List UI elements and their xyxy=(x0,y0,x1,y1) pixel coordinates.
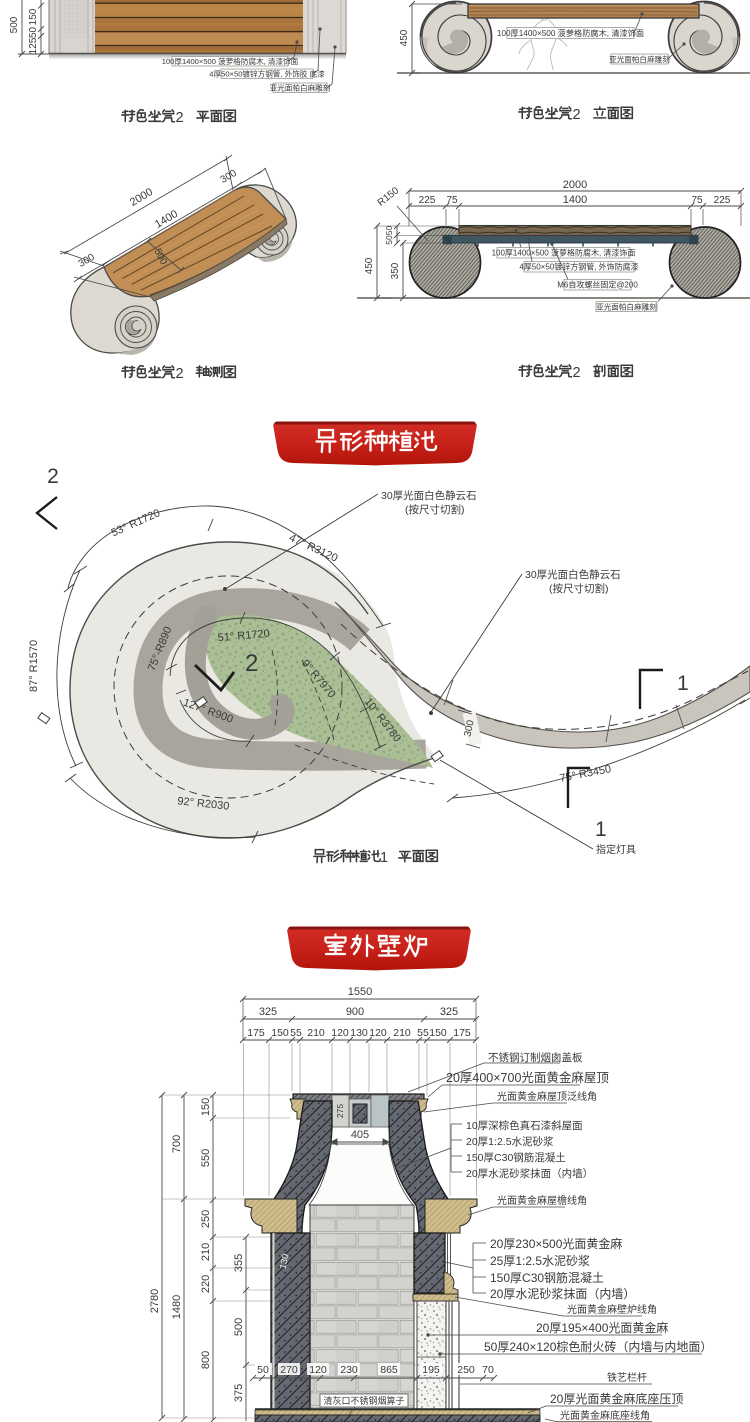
svg-text:225: 225 xyxy=(419,195,436,206)
svg-text:2780: 2780 xyxy=(149,1289,161,1313)
svg-text:光面黄金麻底座线角: 光面黄金麻底座线角 xyxy=(560,1409,650,1422)
svg-text:450: 450 xyxy=(364,257,375,274)
svg-text:375: 375 xyxy=(233,1384,245,1402)
svg-text:120: 120 xyxy=(369,1027,387,1039)
svg-text:20厚光面黄金麻底座压顶: 20厚光面黄金麻底座压顶 xyxy=(550,1391,683,1406)
svg-text:4厚50×50镀锌方钢管, 外饰胶 底漆: 4厚50×50镀锌方钢管, 外饰胶 底漆 xyxy=(209,69,325,79)
svg-text:550: 550 xyxy=(200,1149,212,1167)
svg-text:100厚1400×500 菠萝格防腐木, 清漆饰面: 100厚1400×500 菠萝格防腐木, 清漆饰面 xyxy=(497,28,644,38)
svg-text:光面黄金麻壁炉线角: 光面黄金麻壁炉线角 xyxy=(567,1303,657,1316)
svg-text:1: 1 xyxy=(595,818,607,841)
svg-text:250: 250 xyxy=(200,1210,212,1228)
svg-text:指定灯具: 指定灯具 xyxy=(596,843,636,856)
svg-text:55: 55 xyxy=(290,1027,302,1039)
svg-text:125: 125 xyxy=(28,37,39,54)
svg-text:195: 195 xyxy=(422,1364,440,1376)
svg-text:210: 210 xyxy=(307,1027,325,1039)
svg-text:1550: 1550 xyxy=(348,986,372,998)
svg-text:20厚400×700光面黄金麻屋顶: 20厚400×700光面黄金麻屋顶 xyxy=(446,1070,609,1085)
svg-text:210: 210 xyxy=(200,1243,212,1261)
svg-text:210: 210 xyxy=(393,1027,411,1039)
svg-text:220: 220 xyxy=(200,1275,212,1293)
svg-text:100厚1400×500 菠萝格防腐木, 清漆饰面: 100厚1400×500 菠萝格防腐木, 清漆饰面 xyxy=(162,56,299,66)
svg-text:铁艺栏杆: 铁艺栏杆 xyxy=(607,1371,647,1384)
svg-text:355: 355 xyxy=(233,1254,245,1272)
svg-text:(按尺寸切割): (按尺寸切割) xyxy=(405,503,465,516)
svg-text:不锈钢订制烟囱盖板: 不锈钢订制烟囱盖板 xyxy=(488,1051,583,1064)
svg-text:2: 2 xyxy=(573,107,581,123)
svg-text:10厚深棕色真石漆斜屋面: 10厚深棕色真石漆斜屋面 xyxy=(466,1119,583,1132)
svg-text:275: 275 xyxy=(335,1104,345,1118)
svg-text:2: 2 xyxy=(176,366,184,382)
svg-text:70: 70 xyxy=(482,1364,494,1376)
svg-text:325: 325 xyxy=(440,1006,458,1018)
svg-text:30厚光面白色静云石: 30厚光面白色静云石 xyxy=(381,489,477,502)
svg-text:800: 800 xyxy=(200,1351,212,1369)
svg-text:175: 175 xyxy=(453,1027,471,1039)
svg-text:75: 75 xyxy=(446,195,458,206)
svg-text:150: 150 xyxy=(200,1098,212,1116)
svg-text:55: 55 xyxy=(417,1027,429,1039)
svg-text:亚光面帕白麻雕刻: 亚光面帕白麻雕刻 xyxy=(609,54,670,64)
svg-text:150: 150 xyxy=(271,1027,289,1039)
svg-text:250: 250 xyxy=(457,1364,475,1376)
svg-text:光面黄金麻屋顶泛线角: 光面黄金麻屋顶泛线角 xyxy=(497,1090,597,1103)
svg-text:2: 2 xyxy=(245,650,258,677)
svg-text:350: 350 xyxy=(390,262,401,279)
svg-text:20厚1:2.5水泥砂浆: 20厚1:2.5水泥砂浆 xyxy=(466,1135,554,1148)
svg-text:150: 150 xyxy=(429,1027,447,1039)
svg-text:120: 120 xyxy=(309,1364,327,1376)
svg-text:M6自攻螺丝固定@200: M6自攻螺丝固定@200 xyxy=(557,280,638,290)
svg-text:4厚50×50镀锌方钢管, 外饰防腐漆: 4厚50×50镀锌方钢管, 外饰防腐漆 xyxy=(519,262,638,272)
svg-text:100厚1400×500 菠萝格防腐木, 清漆饰面: 100厚1400×500 菠萝格防腐木, 清漆饰面 xyxy=(492,248,636,258)
svg-text:2000: 2000 xyxy=(563,179,587,191)
svg-text:225: 225 xyxy=(714,195,731,206)
svg-text:87° R1570: 87° R1570 xyxy=(28,640,40,692)
svg-text:20厚230×500光面黄金麻: 20厚230×500光面黄金麻 xyxy=(490,1236,622,1251)
svg-text:亚光面帕白麻雕刻: 亚光面帕白麻雕刻 xyxy=(596,302,657,312)
svg-text:50厚240×120棕色耐火砖（内墙与内地面）: 50厚240×120棕色耐火砖（内墙与内地面） xyxy=(484,1339,712,1354)
svg-text:270: 270 xyxy=(280,1364,298,1376)
svg-text:(按尺寸切割): (按尺寸切割) xyxy=(549,582,609,595)
svg-text:120: 120 xyxy=(331,1027,349,1039)
svg-text:405: 405 xyxy=(351,1129,369,1141)
svg-text:865: 865 xyxy=(380,1364,398,1376)
svg-text:20厚水泥砂浆抹面（内墙）: 20厚水泥砂浆抹面（内墙） xyxy=(490,1286,635,1301)
svg-text:清灰口不锈钢烟箅子: 清灰口不锈钢烟箅子 xyxy=(323,1395,404,1406)
svg-text:325: 325 xyxy=(259,1006,277,1018)
svg-text:2: 2 xyxy=(573,365,581,381)
svg-text:1400: 1400 xyxy=(563,194,587,206)
svg-text:900: 900 xyxy=(346,1006,364,1018)
svg-text:150厚C30钢筋混凝土: 150厚C30钢筋混凝土 xyxy=(466,1151,566,1164)
svg-text:1: 1 xyxy=(380,850,388,866)
svg-text:1480: 1480 xyxy=(171,1295,183,1319)
svg-text:20厚水泥砂浆抹面（内墙）: 20厚水泥砂浆抹面（内墙） xyxy=(466,1167,593,1180)
svg-text:光面黄金麻屋檐线角: 光面黄金麻屋檐线角 xyxy=(497,1194,587,1207)
svg-text:130: 130 xyxy=(350,1027,368,1039)
svg-text:50: 50 xyxy=(257,1364,269,1376)
svg-text:50: 50 xyxy=(384,235,394,245)
svg-text:30厚光面白色静云石: 30厚光面白色静云石 xyxy=(525,568,621,581)
svg-text:175: 175 xyxy=(247,1027,265,1039)
svg-text:75: 75 xyxy=(691,195,703,206)
svg-text:700: 700 xyxy=(171,1135,183,1153)
svg-text:2: 2 xyxy=(47,465,59,488)
svg-text:150厚C30钢筋混凝土: 150厚C30钢筋混凝土 xyxy=(490,1270,604,1285)
svg-text:500: 500 xyxy=(233,1318,245,1336)
svg-text:25厚1:2.5水泥砂浆: 25厚1:2.5水泥砂浆 xyxy=(490,1253,590,1268)
svg-text:450: 450 xyxy=(399,29,410,46)
svg-text:亚光面帕白麻雕刻: 亚光面帕白麻雕刻 xyxy=(270,83,331,93)
svg-text:150: 150 xyxy=(28,8,39,25)
svg-text:50: 50 xyxy=(384,226,394,236)
svg-text:1: 1 xyxy=(677,672,689,695)
svg-text:20厚195×400光面黄金麻: 20厚195×400光面黄金麻 xyxy=(536,1320,668,1335)
svg-text:2: 2 xyxy=(176,110,184,126)
svg-text:500: 500 xyxy=(9,16,20,33)
svg-text:230: 230 xyxy=(340,1364,358,1376)
svg-text:50: 50 xyxy=(28,27,39,39)
